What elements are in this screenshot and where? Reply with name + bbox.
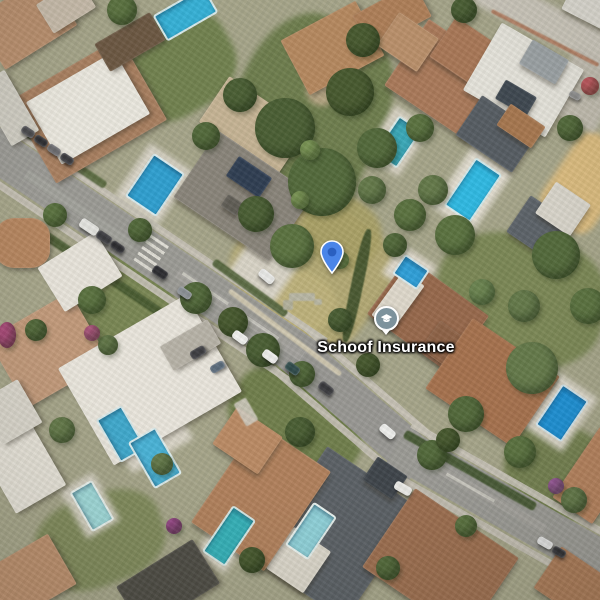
tree: [532, 231, 580, 279]
tree: [49, 417, 75, 443]
tree: [418, 175, 448, 205]
tree: [128, 218, 152, 242]
tree: [561, 487, 587, 513]
tree: [300, 140, 320, 160]
tree: [383, 233, 407, 257]
tree: [557, 115, 583, 141]
bougainvillea: [581, 77, 599, 95]
tree: [43, 203, 67, 227]
tree: [504, 436, 536, 468]
tree: [436, 428, 460, 452]
ground-mark: [314, 299, 322, 305]
tree: [455, 515, 477, 537]
tree: [192, 122, 220, 150]
satellite-map[interactable]: Schoof Insurance: [0, 0, 600, 600]
bougainvillea: [548, 478, 564, 494]
tree: [98, 335, 118, 355]
tree: [285, 417, 315, 447]
tree: [238, 196, 274, 232]
ground-mark: [283, 300, 293, 310]
tree: [270, 224, 314, 268]
tree: [291, 191, 309, 209]
poi-label[interactable]: Schoof Insurance: [317, 339, 454, 357]
tree: [25, 319, 47, 341]
tree: [508, 290, 540, 322]
tree: [357, 128, 397, 168]
tree: [469, 279, 495, 305]
tree: [394, 199, 426, 231]
tree: [78, 286, 106, 314]
tree: [570, 288, 600, 324]
tree: [151, 453, 173, 475]
poi-pointer: [382, 330, 390, 335]
tree: [346, 23, 380, 57]
graduation-cap-icon: [374, 306, 399, 331]
tree: [406, 114, 434, 142]
map-pin-marker[interactable]: [319, 240, 345, 279]
tree: [239, 547, 265, 573]
tree: [358, 176, 386, 204]
tree: [506, 342, 558, 394]
building-roof: [0, 218, 50, 268]
ground-mark: [289, 293, 315, 301]
bougainvillea: [84, 325, 100, 341]
tree: [326, 68, 374, 116]
tree: [448, 396, 484, 432]
tree: [435, 215, 475, 255]
bougainvillea: [166, 518, 182, 534]
school-poi[interactable]: [374, 306, 399, 335]
tree: [376, 556, 400, 580]
tree: [328, 308, 352, 332]
tree: [451, 0, 477, 23]
tree: [223, 78, 257, 112]
